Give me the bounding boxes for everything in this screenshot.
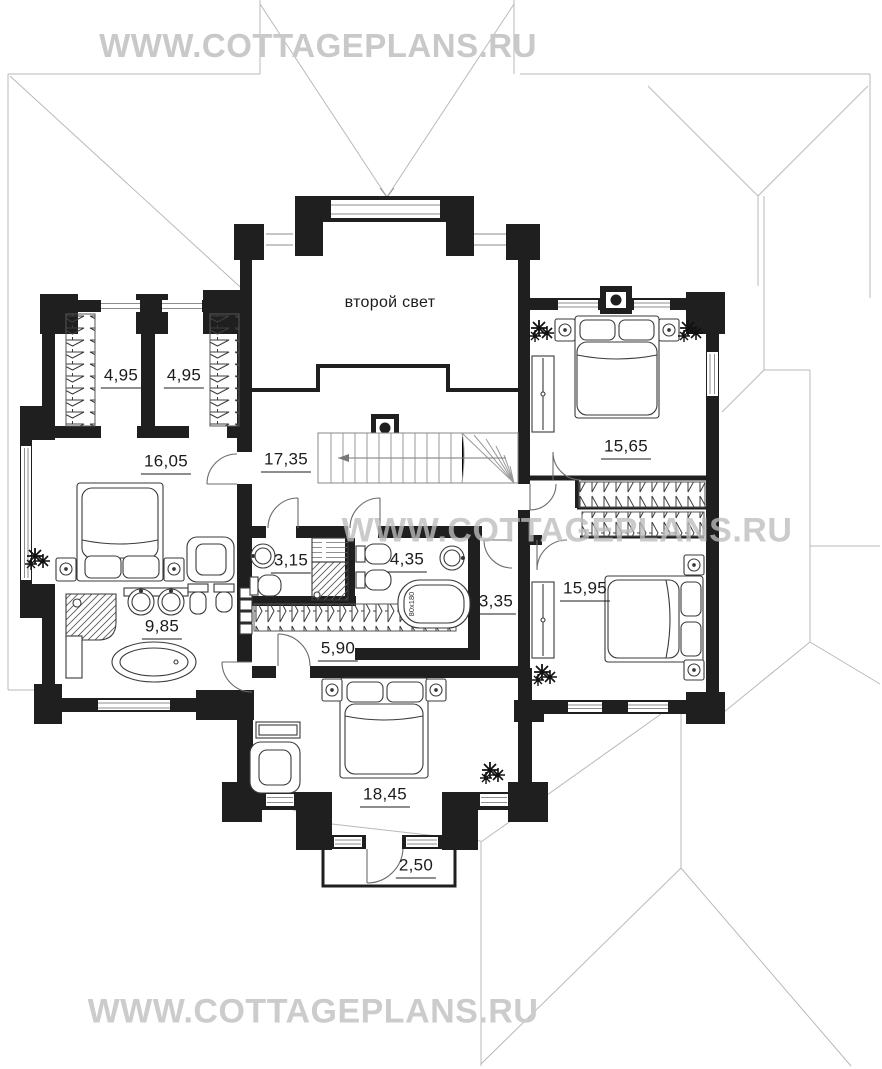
bedroom-bottom-right-furniture bbox=[532, 555, 704, 680]
label-hall: 3,35 bbox=[476, 592, 516, 615]
watermark-top: WWW.COTTAGEPLANS.RU bbox=[99, 27, 537, 65]
bathtub-size-label: 80x180 bbox=[407, 592, 416, 617]
label-bathroom-small: 3,15 bbox=[271, 551, 311, 574]
bidet bbox=[214, 584, 234, 592]
label-bathroom-middle: 4,35 bbox=[387, 550, 427, 573]
floor-plan-page: 80x180 bbox=[0, 0, 882, 1069]
label-bedroom-top-right: 15,65 bbox=[601, 437, 651, 460]
bedroom-left-furniture bbox=[56, 483, 234, 582]
label-bedroom-bottom: 18,45 bbox=[360, 785, 410, 808]
label-second-light: второй свет bbox=[345, 294, 436, 312]
label-closet-2: 4,95 bbox=[164, 366, 204, 389]
toilet bbox=[188, 584, 208, 592]
bedroom-bottom-furniture bbox=[250, 678, 446, 793]
label-bedroom-left: 16,05 bbox=[141, 452, 191, 475]
plant-icon bbox=[529, 320, 554, 342]
plant-icon bbox=[480, 762, 505, 784]
bedroom-top-right-furniture bbox=[532, 316, 679, 432]
bidet bbox=[365, 570, 391, 590]
label-bedroom-bottom-right: 15,95 bbox=[560, 579, 610, 602]
watermark-middle: WWW.COTTAGEPLANS.RU bbox=[342, 512, 793, 551]
label-balcony: 2,50 bbox=[396, 856, 436, 879]
label-wardrobe-corridor: 5,90 bbox=[318, 639, 358, 662]
chimney-top-right bbox=[600, 286, 632, 314]
label-bathroom-left: 9,85 bbox=[142, 617, 182, 640]
label-stair-hall: 17,35 bbox=[261, 450, 311, 473]
watermark-bottom: WWW.COTTAGEPLANS.RU bbox=[88, 993, 539, 1032]
plant-icon bbox=[532, 664, 557, 686]
staircase bbox=[318, 433, 518, 483]
label-closet-1: 4,95 bbox=[101, 366, 141, 389]
